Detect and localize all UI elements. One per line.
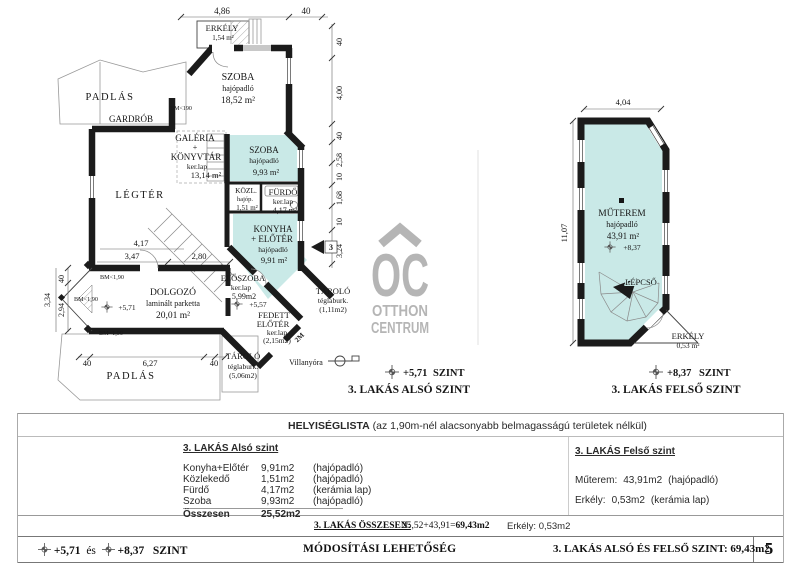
level-mark-icon [38, 543, 51, 556]
divider-summary-top [17, 515, 783, 516]
gardrob-bm: BM<190 [170, 106, 192, 112]
footer-levels: +5,71 és +8,37 SZINT [38, 543, 187, 557]
konyha-label2: + ELŐTÉR [251, 234, 293, 244]
erkely-up-area: 0,53 m² [676, 341, 700, 350]
row-name: Fürdő [183, 485, 261, 496]
row-area: 9,93m2 [261, 496, 313, 507]
villanyora-label: Villanyóra [289, 358, 323, 367]
floorplan-sheet: 4,86 40 40 4,00 40 2,58 10 1,68 10 3,24 … [0, 0, 800, 565]
dim-right-7: 10 [335, 218, 344, 226]
row-area: 1,51m2 [261, 474, 313, 485]
szoba9-area: 9,93 m² [253, 167, 280, 177]
erkely-up-label: ERKÉLY [672, 331, 705, 341]
dim-inner-1: 4,17 [134, 238, 149, 248]
fedett-area: (2,15m2) [263, 336, 291, 345]
table-row: Konyha+Előtér9,91m2(hajópadló) [183, 463, 383, 474]
dim-up-left: 11,07 [559, 224, 569, 243]
row-area: 9,91m2 [261, 463, 313, 474]
kozl-area: 1,51 m² [236, 204, 258, 212]
furdo-area: 4,17 m² [273, 206, 298, 215]
table-row: Szoba9,93m2(hajópadló) [183, 496, 383, 507]
dim-right-1: 40 [335, 38, 344, 46]
summary-row: 3. LAKÁS ÖSSZESEN: 25,52+43,91=69,43m2 E… [0, 521, 800, 535]
konyha-area: 9,91 m² [261, 255, 288, 265]
tarolo1-area: (1,11m2) [319, 305, 347, 314]
dimensions: 4,86 40 40 4,00 40 2,58 10 1,68 10 3,24 … [43, 6, 664, 368]
room-list-header-bold: HELYISÉGLISTA [288, 420, 370, 432]
logo-line1: OTTHON [372, 303, 428, 320]
szoba18-area: 18,52 m² [221, 96, 255, 106]
dim-left-2: 40 [57, 275, 66, 283]
galeria-label: GALÉRIA [175, 133, 215, 143]
table-lower-level: 3. LAKÁS Alsó szint Konyha+Előtér9,91m2(… [183, 443, 383, 520]
furdo-floor: ker.lap [273, 197, 293, 206]
muterem-label: MŰTEREM [598, 207, 646, 219]
summary-erkely: Erkély: 0,53m2 [507, 521, 570, 532]
footer-and: és [86, 545, 96, 557]
footer-level1: +5,71 [54, 545, 81, 557]
dolgozo-label: DOLGOZÓ [150, 286, 196, 298]
table-row: Műterem:43,91m2(hajópadló) [575, 475, 775, 486]
footer-right-title: 3. LAKÁS ALSÓ ÉS FELSŐ SZINT: 69,43m2 [553, 543, 770, 555]
dim-inner-3: 2,80 [192, 251, 207, 261]
dim-bottom-1: 40 [83, 358, 92, 368]
summary-calc: 25,52+43,91=69,43m2 [402, 521, 490, 531]
divider-header [17, 436, 783, 437]
table-row: Közlekedő1,51m2(hajópadló) [183, 474, 383, 485]
unit-marker: 3 [311, 240, 337, 254]
szoba9-floor: hajópadló [249, 156, 279, 165]
table-lower-title: 3. LAKÁS Alsó szint [183, 443, 383, 454]
dim-inner-2: 3,47 [125, 251, 140, 261]
dim-right-3: 40 [335, 132, 344, 140]
level-mark-dolgozo [101, 301, 112, 312]
electric-meter-icon [328, 356, 359, 366]
logo-line2: CENTRUM [371, 320, 429, 337]
konyha-floor: hajópadló [258, 245, 288, 254]
table-upper-title: 3. LAKÁS Felső szint [575, 446, 775, 457]
muterem-dot [619, 198, 624, 203]
summary-erkely-value: 0,53m2 [539, 521, 571, 532]
footer-level2: +8,37 [118, 545, 145, 557]
muterem-area: 43,91 m² [607, 231, 640, 241]
konyvtar-area: 13,14 m² [191, 170, 222, 180]
erkely-area: 1,54 m² [212, 34, 234, 42]
summary-erkely-label: Erkély: [507, 521, 536, 532]
table-row: Erkély:0,53m2(kerámia lap) [575, 495, 775, 506]
dim-top-1: 4,86 [214, 6, 230, 16]
eloszoba-floor: ker.lap [231, 283, 251, 292]
gardrob-label: GARDRÓB [109, 114, 153, 124]
konyha-label: KONYHA [254, 224, 293, 234]
total-label: Összesen [183, 509, 261, 520]
logo-mark: OC [371, 242, 429, 309]
footer-center-title: MÓDOSÍTÁSI LEHETŐSÉG [303, 543, 456, 555]
caption-lower-szint: SZINT [433, 368, 465, 379]
konyvtar-label: KÖNYVTÁR [171, 152, 222, 162]
tarolo2-label: TÁROLÓ [226, 351, 260, 361]
caption-upper-level: +8,37 [667, 368, 691, 379]
divider-top [17, 413, 783, 414]
level-mark-icon [102, 543, 115, 556]
bm-label-2: BM<1,90 [74, 296, 98, 303]
kozl-floor: hajóp. [237, 196, 253, 203]
row-name: Műterem: [575, 475, 617, 486]
row-floor: (kerámia lap) [313, 485, 371, 496]
level-mark-caption-lower [385, 365, 399, 379]
table-row: Fürdő4,17m2(kerámia lap) [183, 485, 383, 496]
title-block: +5,71 és +8,37 SZINT MÓDOSÍTÁSI LEHETŐSÉ… [0, 537, 800, 562]
tarolo2-floor: téglaburk. [228, 362, 258, 371]
footer-szint: SZINT [153, 545, 188, 557]
drawing-area: 4,86 40 40 4,00 40 2,58 10 1,68 10 3,24 … [0, 0, 800, 413]
eloszoba-label: ELŐSZOBA [221, 273, 266, 283]
dolgozo-level: +5,71 [118, 303, 136, 312]
caption-upper-title: 3. LAKÁS FELSŐ SZINT [611, 381, 740, 396]
row-name: Szoba [183, 496, 261, 507]
dim-top-2: 40 [302, 6, 312, 16]
level-mark-caption-upper [649, 365, 663, 379]
row-area: 4,17m2 [261, 485, 313, 496]
caption-lower-title: 3. LAKÁS ALSÓ SZINT [348, 382, 470, 396]
muterem-floor: hajópadló [606, 220, 638, 229]
dolgozo-floor: laminált parketta [146, 299, 200, 308]
dim-right-6: 1,68 [335, 191, 344, 205]
szoba9-label: SZOBA [249, 145, 279, 155]
tarolo1-label: TÁROLÓ [316, 286, 350, 296]
szoba18-label: SZOBA [222, 72, 256, 83]
furdo-label: FÜRDŐ [269, 187, 298, 197]
table-total-row: Összesen25,52m2 [183, 509, 383, 520]
summary-calc-expr: 25,52+43,91= [402, 521, 455, 531]
row-floor: (hajópadló) [668, 475, 718, 486]
row-floor: (hajópadló) [313, 463, 363, 474]
tarolo1-floor: téglaburk. [318, 296, 348, 305]
galeria-plus: + [193, 143, 198, 152]
muterem-level: +8,37 [623, 243, 641, 252]
room-list-header-rest: (az 1,90m-nél alacsonyabb belmagasságú t… [370, 420, 647, 432]
caption-upper-szint: SZINT [699, 368, 731, 379]
legter-label: LÉGTÉR [115, 189, 164, 201]
summary-label: 3. LAKÁS ÖSSZESEN: [314, 521, 411, 531]
dim-bottom-3: 40 [210, 358, 219, 368]
row-floor: (hajópadló) [313, 474, 363, 485]
row-name: Erkély: [575, 495, 606, 506]
lepcso-label: LÉPCSŐ [625, 277, 657, 287]
padlas-top-label: PADLÁS [86, 91, 135, 103]
bm-label-3: BM<1,90 [99, 330, 123, 337]
dim-bottom-2: 6,27 [143, 358, 158, 368]
bm-label-1: BM<1,90 [100, 274, 124, 281]
row-name: Közlekedő [183, 474, 261, 485]
tarolo2-area: (5,06m2) [229, 371, 257, 380]
unit-marker-number: 3 [329, 243, 333, 252]
table-upper-level: 3. LAKÁS Felső szint Műterem:43,91m2(haj… [575, 446, 775, 506]
row-area: 43,91m2 [623, 475, 662, 486]
total-value: 25,52m2 [261, 509, 313, 520]
row-name: Konyha+Előtér [183, 463, 261, 474]
erkely-label: ERKÉLY [206, 23, 239, 33]
table-column-divider [568, 437, 569, 515]
otthon-centrum-logo: OC OTTHON CENTRUM [371, 228, 429, 337]
border-bottom [17, 562, 783, 563]
caption-lower-level: +5,71 [403, 368, 427, 379]
dim-left-1: 3,34 [43, 293, 52, 307]
padlas-bottom-label: PADLÁS [107, 370, 156, 382]
eloszoba-level: +5,57 [249, 300, 267, 309]
kozl-label: KÖZL. [235, 186, 257, 195]
row-floor: (hajópadló) [313, 496, 363, 507]
dim-left-3: 2,94 [57, 303, 66, 317]
dim-up-top: 4,04 [616, 97, 632, 107]
dim-right-5: 10 [335, 173, 344, 181]
page-number: 5 [755, 539, 783, 559]
row-area: 0,53m2 [612, 495, 645, 506]
dim-right-2: 4,00 [335, 86, 344, 100]
dolgozo-area: 20,01 m² [156, 311, 190, 321]
room-list-header: HELYISÉGLISTA (az 1,90m-nél alacsonyabb … [288, 420, 647, 432]
summary-total: 69,43m2 [455, 521, 489, 531]
dim-right-4: 2,58 [335, 153, 344, 167]
row-floor: (kerámia lap) [651, 495, 709, 506]
szoba18-floor: hajópadló [222, 84, 254, 93]
plan-captions: +5,71 SZINT 3. LAKÁS ALSÓ SZINT +8,37 SZ… [348, 365, 741, 396]
